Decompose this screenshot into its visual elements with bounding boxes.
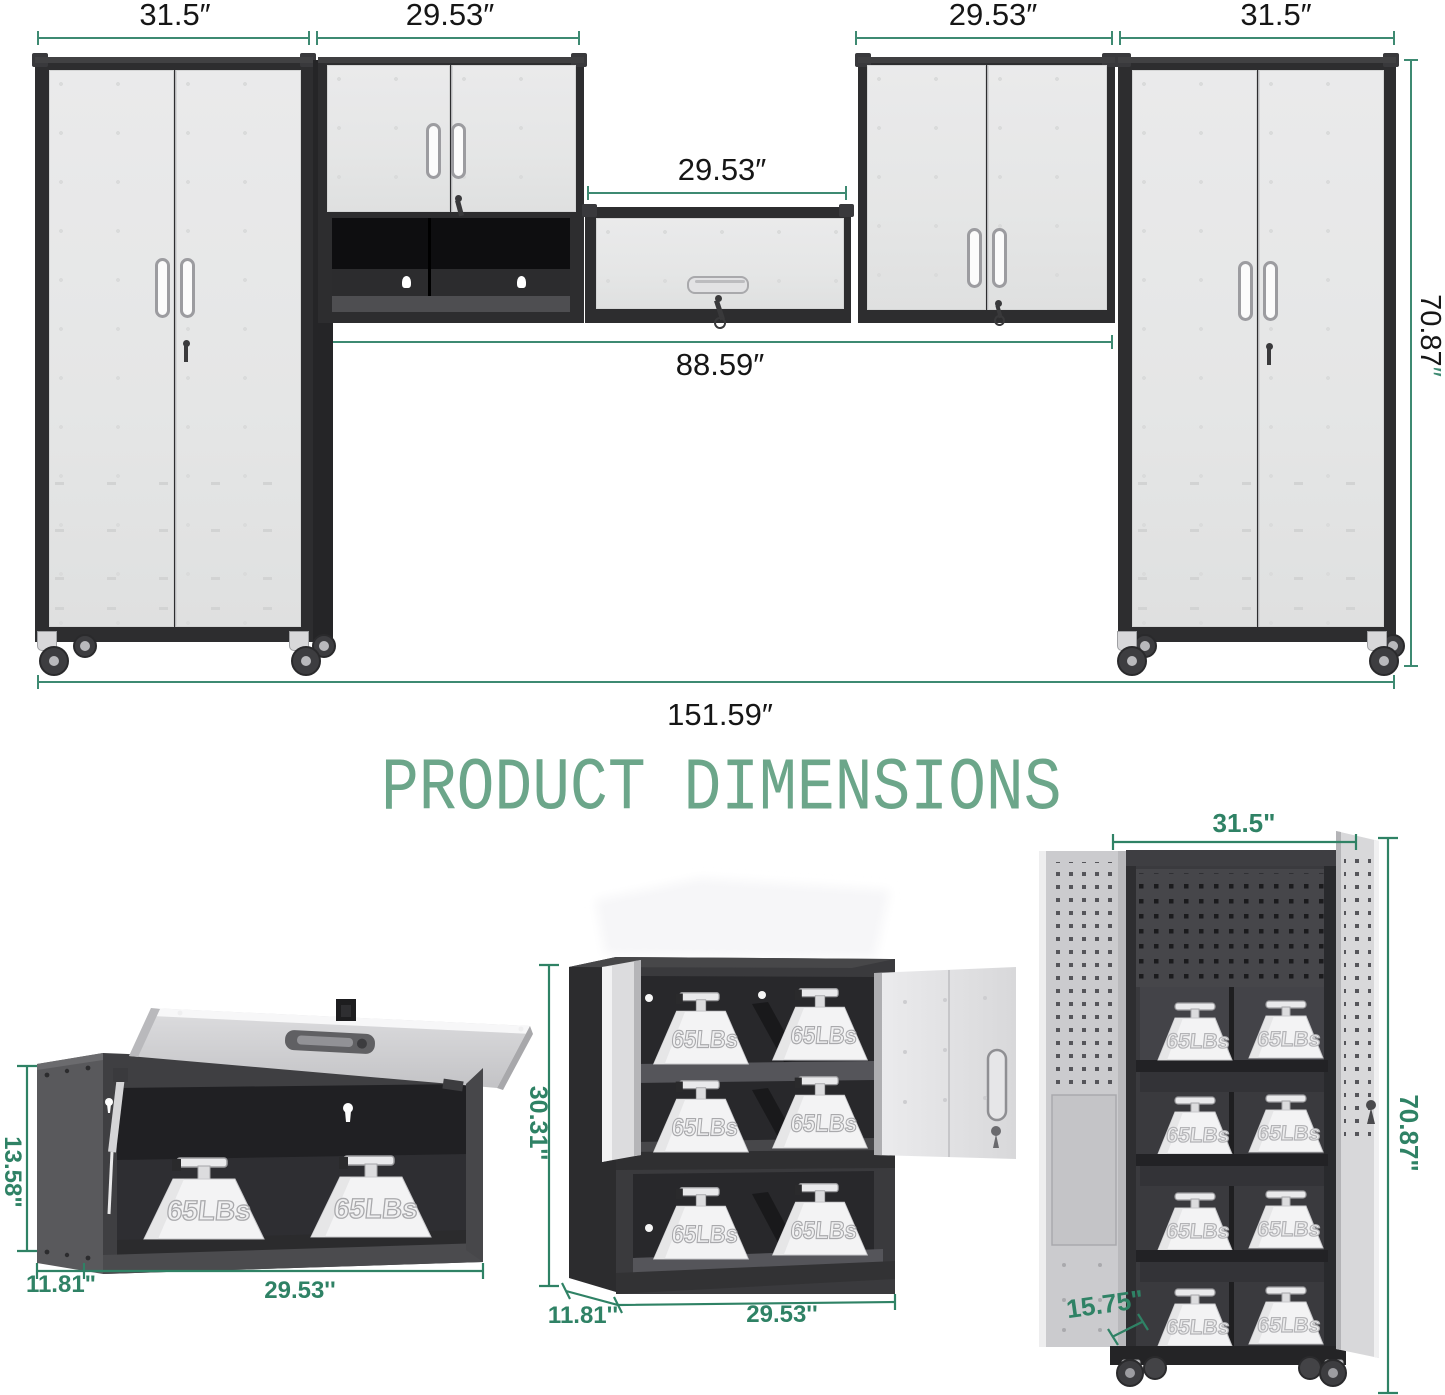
svg-text:31.5": 31.5"	[1213, 808, 1276, 838]
svg-text:11.81'': 11.81''	[548, 1302, 618, 1329]
svg-text:13.58": 13.58"	[0, 1136, 26, 1207]
svg-text:70.87": 70.87"	[1394, 1094, 1424, 1171]
svg-text:11.81": 11.81"	[26, 1271, 96, 1298]
svg-text:29.53'': 29.53''	[264, 1277, 335, 1304]
svg-text:29.53'': 29.53''	[746, 1301, 817, 1328]
svg-text:30.31'': 30.31''	[524, 1086, 552, 1160]
